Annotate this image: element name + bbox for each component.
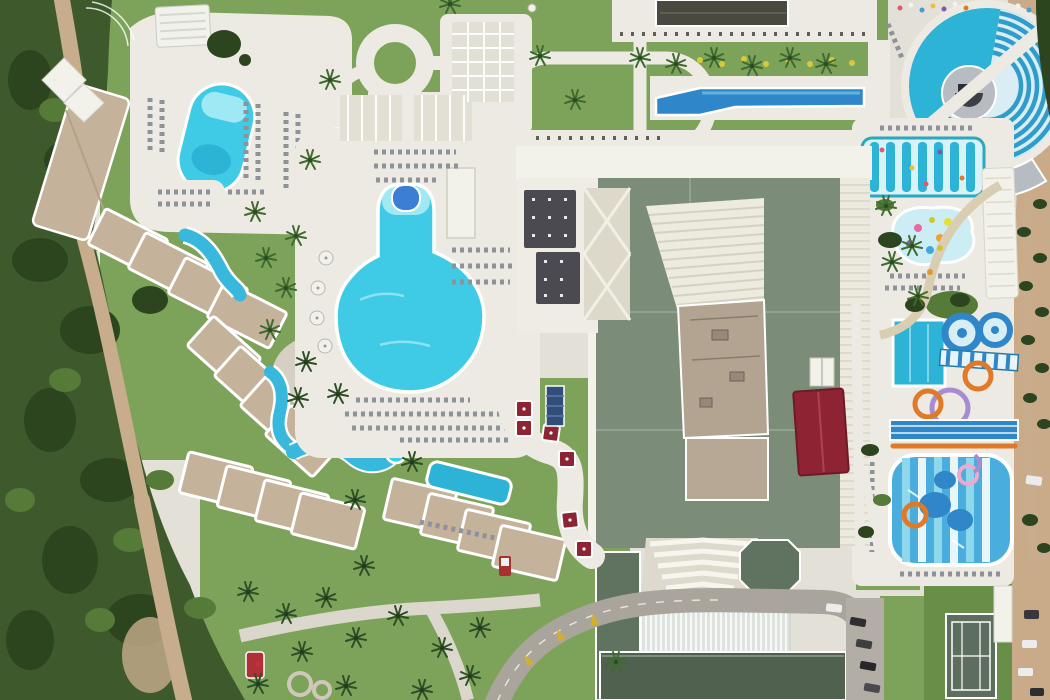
pool-bar-building — [447, 168, 475, 238]
pyramid-skylights — [584, 188, 630, 320]
red-service-van — [499, 556, 511, 576]
dark-tree — [207, 30, 241, 58]
pool-steps — [392, 185, 420, 211]
solar-panel — [546, 386, 564, 426]
red-building — [793, 388, 849, 475]
ribbed-glass-roof — [640, 612, 790, 652]
pool-gazebo — [155, 5, 211, 48]
resort-aerial-photo — [0, 0, 1050, 700]
tan-rooftop — [678, 300, 768, 500]
garden-shed — [810, 358, 834, 386]
lap-pool — [650, 76, 872, 120]
aerial-canvas — [0, 0, 1050, 700]
kids-splash-lanes-pool — [862, 138, 984, 196]
aqua-playground — [890, 455, 1012, 565]
dark-green-roof — [600, 652, 846, 700]
court-building — [994, 586, 1012, 642]
green-octagon-roof — [740, 540, 800, 592]
mat-racer-slide — [890, 420, 1018, 440]
